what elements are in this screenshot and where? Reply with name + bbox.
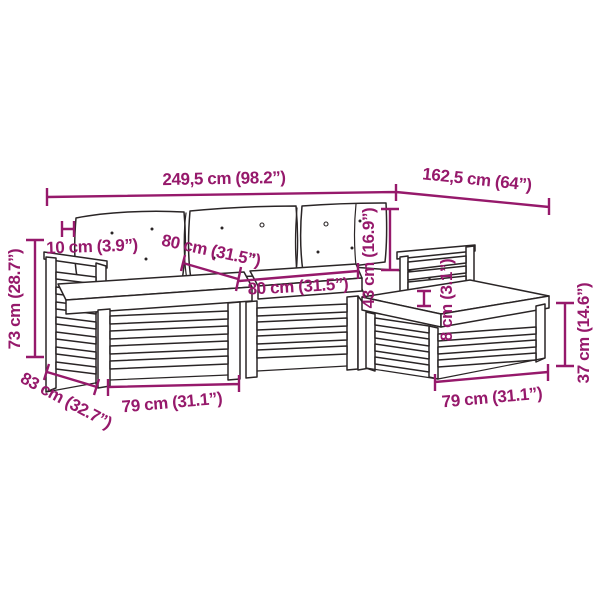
dim-line-overall-height [26,240,44,357]
product-dimension-diagram: 249,5 cm (98.2”) 162,5 cm (64”) 73 cm (2… [0,0,600,600]
dim-bracket-armrest-thickness [62,221,74,237]
dim-label-footstool-height: 37 cm (14.6”) [574,283,594,384]
dim-line-footstool-height [556,303,574,366]
dim-label-backrest-height: 43 cm (16.9”) [359,208,379,309]
dim-label-total-length: 249,5 cm (98.2”) [162,168,285,190]
dim-line-backrest-height [381,209,399,270]
dim-line-right-section-length [396,192,549,215]
dim-label-overall-height: 73 cm (28.7”) [5,249,25,350]
dim-bracket-cushion-thickness [417,291,431,306]
dim-label-cushion-thickness: 8 cm (3.1”) [437,259,457,342]
dim-label-armrest-thickness: 10 cm (3.9”) [46,235,138,258]
dimension-lines [0,0,600,600]
